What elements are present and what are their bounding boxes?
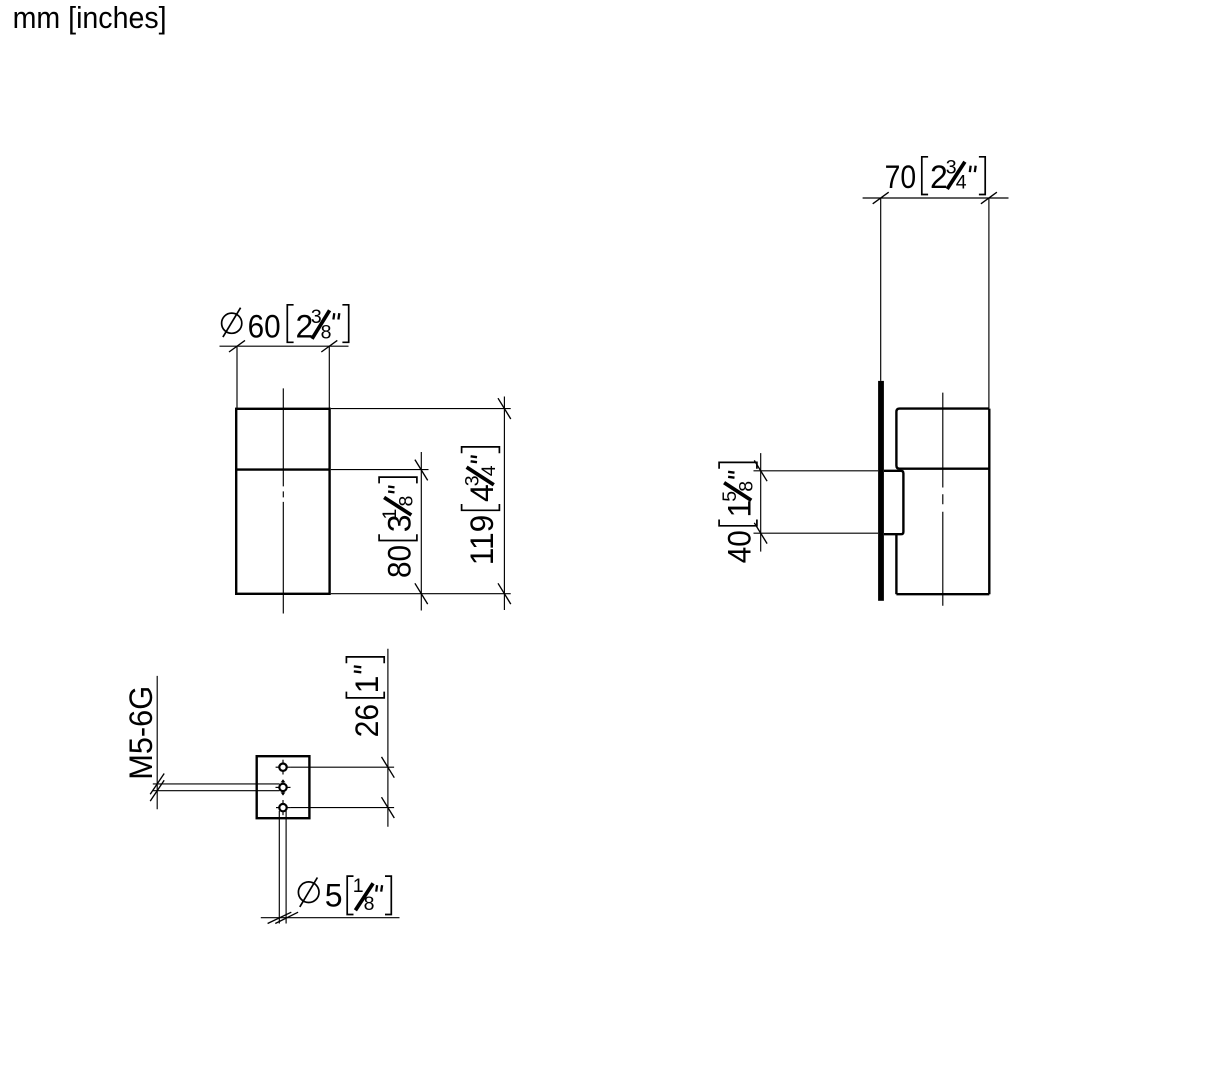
svg-text:40: 40 <box>722 530 758 563</box>
svg-text:8: 8 <box>321 321 332 343</box>
svg-text:1: 1 <box>353 875 364 897</box>
svg-text:119: 119 <box>464 515 500 566</box>
svg-text:M5-6G: M5-6G <box>123 686 159 780</box>
svg-text:4: 4 <box>478 465 500 476</box>
svg-text:mm [inches]: mm [inches] <box>13 0 167 35</box>
svg-text:26: 26 <box>349 704 385 738</box>
svg-text:80: 80 <box>382 545 418 578</box>
svg-text:1: 1 <box>349 676 385 694</box>
svg-text:70: 70 <box>885 159 917 195</box>
svg-text:1: 1 <box>379 509 401 520</box>
svg-text:8: 8 <box>364 893 375 915</box>
svg-text:8: 8 <box>395 496 417 507</box>
svg-text:5: 5 <box>325 877 343 913</box>
svg-text:8: 8 <box>735 481 757 492</box>
svg-text:60: 60 <box>248 309 281 345</box>
svg-text:4: 4 <box>956 172 967 194</box>
